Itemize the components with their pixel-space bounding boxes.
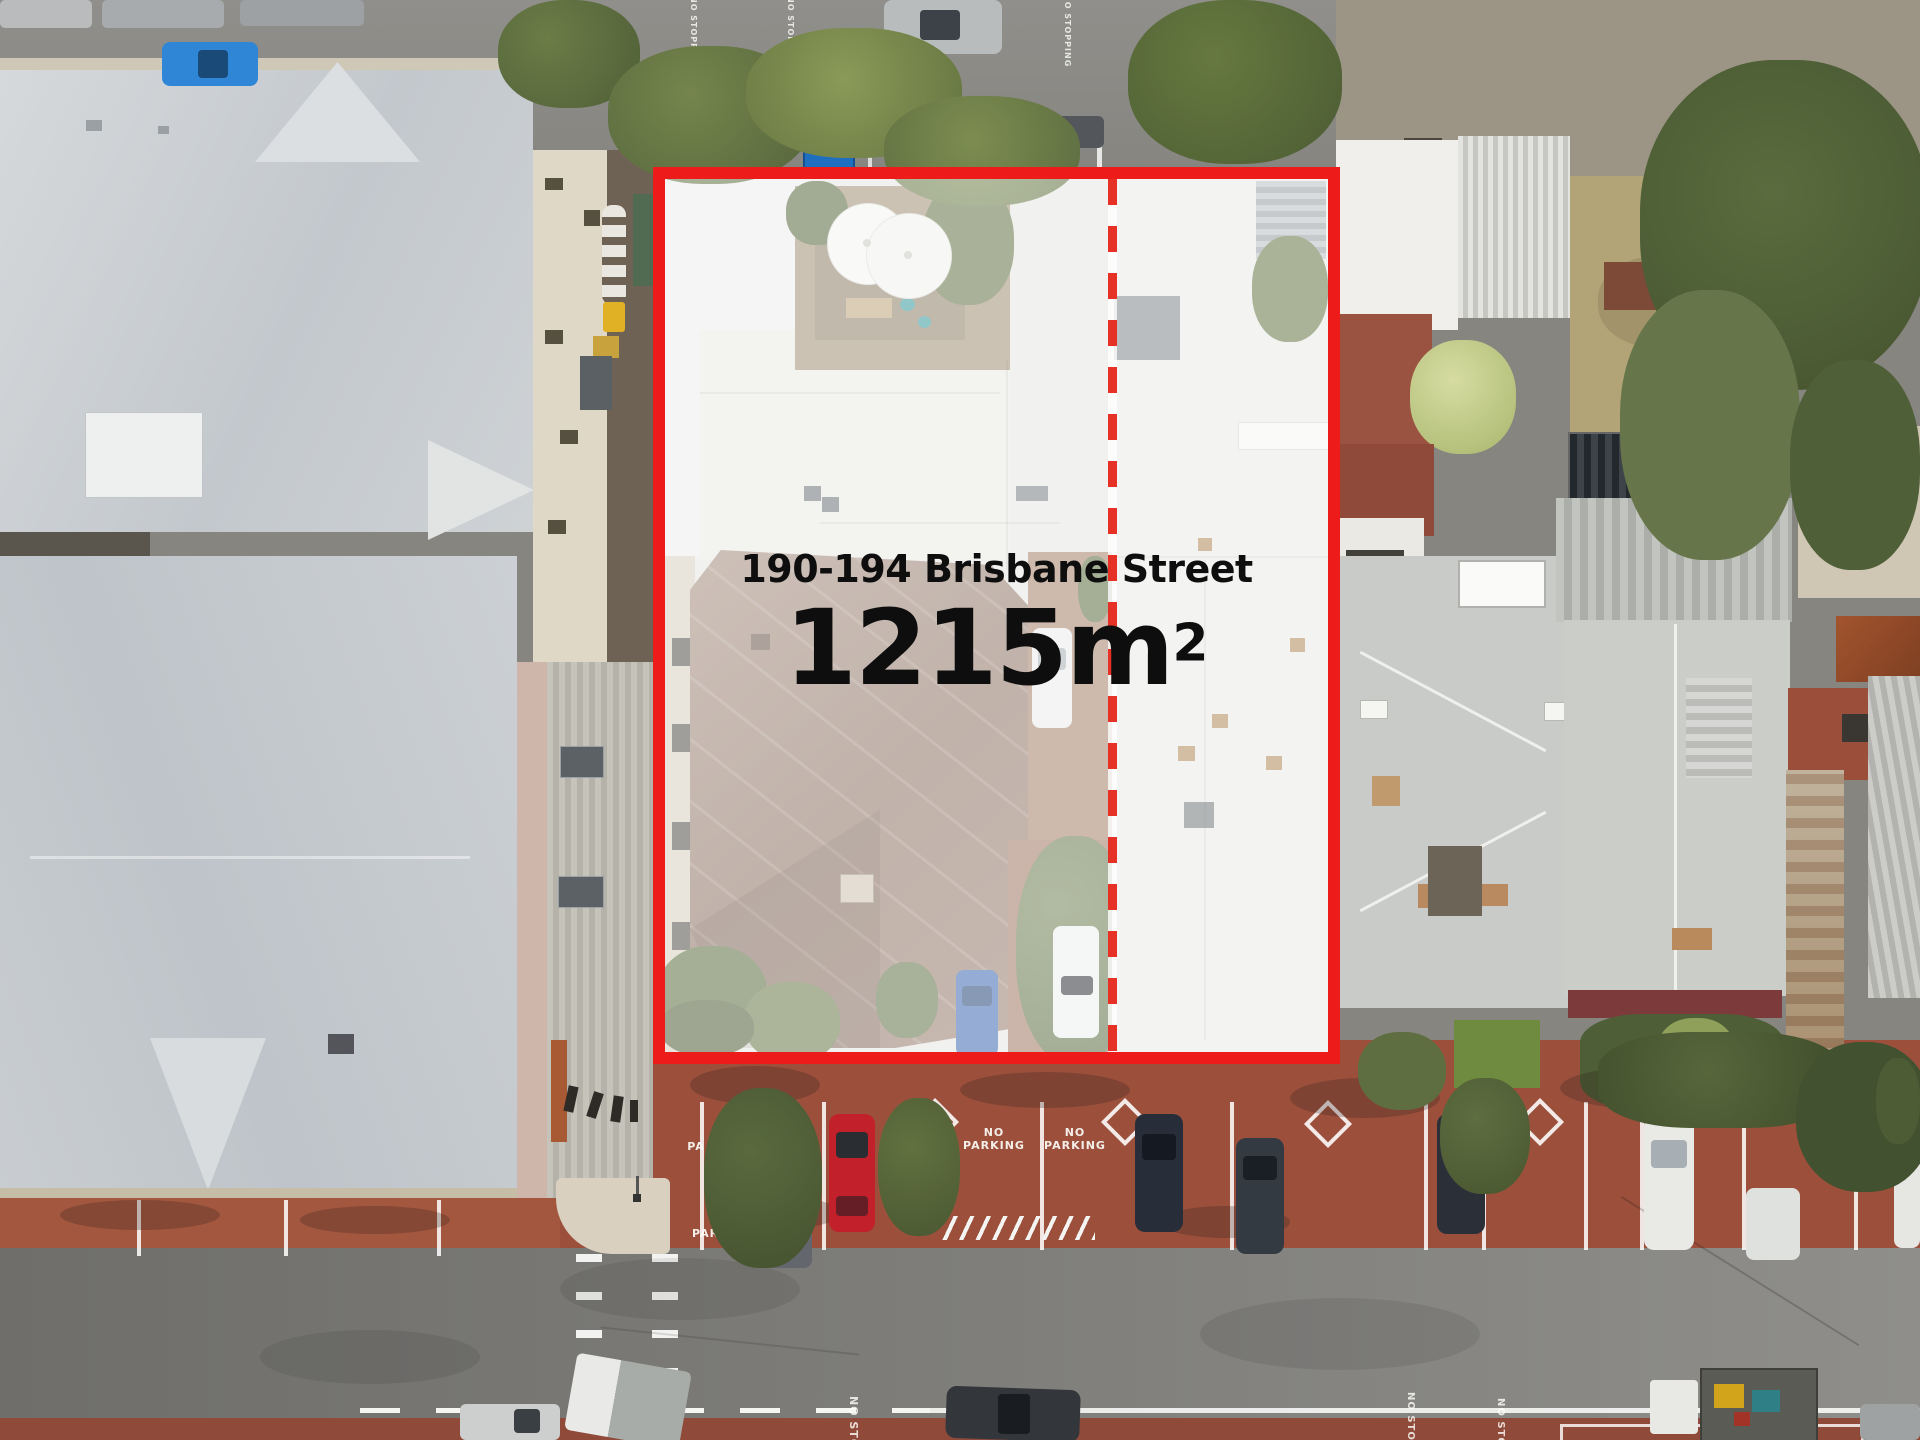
aerial-photo: NO PARKING NO PARKING NO PARKING PA NO S… (0, 0, 1920, 1440)
hvac-unit (560, 746, 604, 778)
roof-vent-dark (328, 1034, 354, 1054)
car-silver (460, 1404, 560, 1440)
pavement-stain (960, 1072, 1130, 1108)
area-value: 1215 (784, 587, 1065, 709)
property-address-label: 190-194 Brisbane Street (665, 546, 1328, 592)
car-windshield (514, 1409, 540, 1433)
road-patch (1200, 1298, 1480, 1370)
car-windshield (1243, 1156, 1277, 1180)
hatched-no-stopping-zone (937, 1216, 1095, 1240)
yellow-bin (603, 302, 625, 332)
car-windshield (1142, 1134, 1176, 1160)
bollard (630, 1100, 638, 1122)
car-silver (102, 0, 224, 28)
roof-box-tan (1372, 776, 1400, 806)
area-exponent: 2 (1172, 614, 1208, 674)
tree-cluster-east (1790, 360, 1920, 570)
street-tree (1358, 1032, 1446, 1110)
roof-corrugated-ne (1458, 136, 1570, 318)
hvac-unit (558, 876, 604, 908)
car-rear-glass (836, 1196, 868, 1216)
flowering-tree (1410, 340, 1516, 454)
wall-window (545, 330, 563, 344)
parking-bay-line (1584, 1102, 1588, 1250)
parking-bay-line (1424, 1102, 1428, 1250)
roof-rust-streaked (1786, 770, 1844, 1070)
street-tree (878, 1098, 960, 1236)
marking-line: PARKING (1043, 1139, 1107, 1152)
pink-wall-strip (517, 662, 547, 1198)
parking-bay-line (284, 1200, 288, 1256)
wall-window (548, 520, 566, 534)
car-silver (0, 0, 92, 28)
skylights-pair (1458, 560, 1546, 608)
tree-canopy (1128, 0, 1342, 164)
car-white (1644, 1116, 1694, 1250)
no-stopping-marking: NO STOPPING (1063, 0, 1072, 54)
orange-wall-sliver (551, 1040, 567, 1142)
truck-cab (1650, 1380, 1698, 1434)
car-windshield (198, 50, 228, 78)
no-stopping-marking: NO STOPPING (1495, 1398, 1506, 1440)
car-windshield (920, 10, 960, 40)
roof-skylight (1360, 700, 1388, 719)
street-tree (1876, 1058, 1920, 1144)
car-grey (1860, 1404, 1920, 1440)
wall-window (545, 178, 563, 190)
property-area-label: 1215m2 (665, 596, 1328, 700)
car-navy (1135, 1114, 1183, 1232)
no-stopping-marking: NO STOPPING (1405, 1392, 1416, 1440)
chimney-pots (1482, 884, 1508, 906)
roof-metal-lower-left (0, 556, 517, 1198)
property-label-block: 190-194 Brisbane Street 1215m2 (665, 546, 1328, 700)
roof-box-tan (1672, 928, 1712, 950)
roof-fascia-top (0, 58, 540, 70)
pavement-stain (60, 1200, 220, 1230)
ac-stack (580, 356, 612, 410)
sign-head (633, 1194, 641, 1202)
street-tree (704, 1088, 822, 1268)
roof-vent (86, 120, 102, 131)
car-windshield (998, 1394, 1030, 1434)
marking-line: NO (1043, 1126, 1107, 1139)
pavement-stain (300, 1206, 450, 1234)
car-white (1746, 1188, 1800, 1260)
marking-line: NO (962, 1126, 1026, 1139)
yellow-pallet (593, 336, 619, 358)
roof-ridge-highlight (30, 856, 470, 859)
parking-bay-line (822, 1102, 826, 1250)
lightwell (1428, 846, 1482, 916)
roof-diagonal-east (1868, 676, 1920, 998)
no-parking-marking: NO PARKING (962, 1126, 1026, 1152)
tree-cluster-east (1620, 290, 1800, 560)
rust-roof-patch (1836, 616, 1920, 682)
roof-skylight (1544, 702, 1566, 721)
car-windshield (836, 1132, 868, 1158)
road-patch (260, 1330, 480, 1384)
lawn-east (1454, 1020, 1540, 1088)
wall-window (584, 210, 600, 226)
car-silver (240, 0, 364, 26)
roof-white-ne (1336, 140, 1458, 330)
roof-vent (158, 126, 169, 134)
brick-window (1842, 714, 1868, 742)
truck-cargo-yellow (1714, 1384, 1744, 1408)
truck-cargo-red (1734, 1412, 1750, 1426)
roof-ribs-b (1686, 678, 1752, 778)
wall-window (560, 430, 578, 444)
area-unit: m (1066, 587, 1172, 709)
truck-cargo-teal (1752, 1390, 1780, 1412)
parking-bay-line (437, 1200, 441, 1256)
rooftop-ac-unit (85, 412, 203, 498)
green-fence (633, 194, 653, 286)
street-tree (1440, 1078, 1530, 1194)
no-stopping-marking: NO STOPPING (847, 1396, 860, 1440)
keg-stack (602, 205, 626, 305)
marking-line: PARKING (962, 1139, 1026, 1152)
roof-fascia-south (0, 1188, 520, 1198)
no-parking-marking: NO PARKING (1043, 1126, 1107, 1152)
car-windshield (1651, 1140, 1687, 1168)
